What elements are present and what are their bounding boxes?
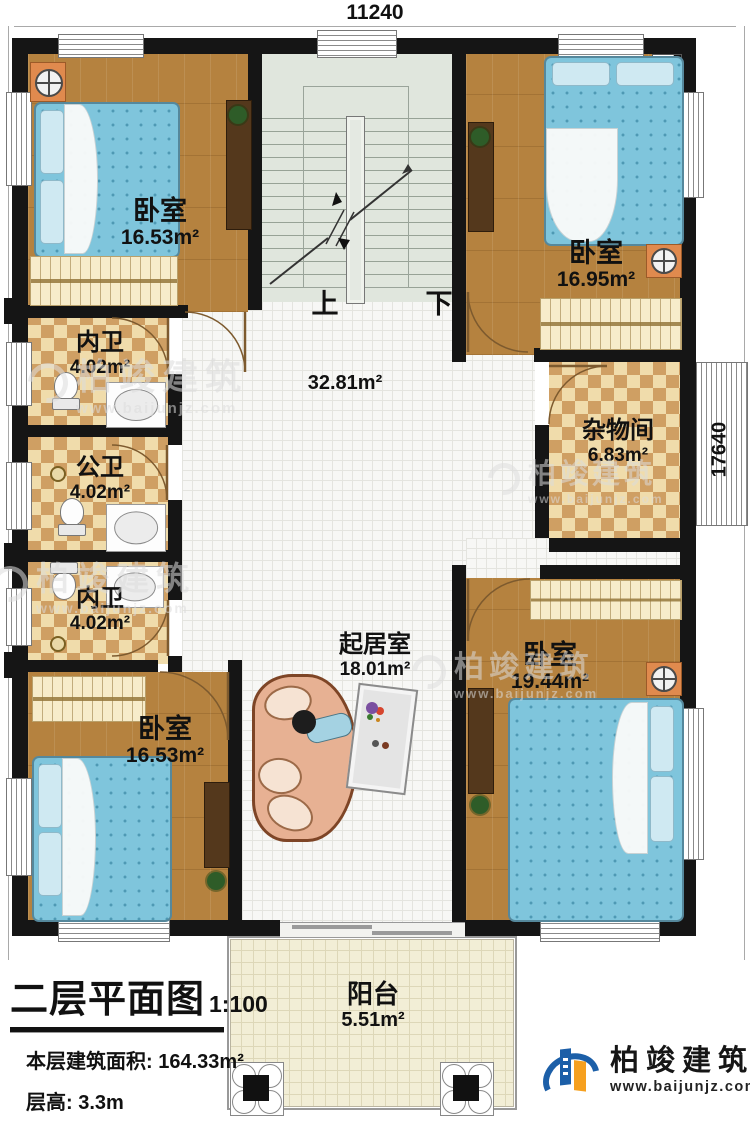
coffee-table: [346, 683, 418, 796]
brand-logo-icon: [540, 1040, 602, 1102]
blanket: [612, 702, 648, 854]
sink-icon: [106, 382, 166, 428]
wall: [228, 660, 242, 922]
wall-pier: [4, 652, 12, 678]
door-arc: [112, 600, 168, 656]
sliding-door-panel: [292, 925, 372, 929]
window: [317, 30, 397, 58]
wardrobe: [540, 298, 682, 350]
door-arc: [185, 312, 245, 372]
brand-name: 柏竣建筑: [610, 1047, 750, 1076]
stairs-up-label: 上: [304, 282, 346, 321]
pillow: [650, 706, 674, 772]
title-underline: [10, 1027, 224, 1033]
dimension-width: 11240: [280, 1, 470, 25]
sliding-door-panel: [372, 931, 452, 935]
window: [6, 462, 32, 530]
pillow: [552, 62, 610, 86]
pillow: [616, 62, 674, 86]
lamp-icon: [651, 248, 677, 274]
wardrobe: [32, 676, 146, 722]
wall: [535, 425, 549, 538]
plan-scale: 1:100: [209, 991, 268, 1018]
desk: [204, 782, 230, 868]
wall-pier: [4, 298, 12, 324]
wardrobe: [30, 256, 178, 306]
pendant-light-icon: [50, 466, 66, 482]
floor-area-line: 本层建筑面积: 164.33m²: [26, 1045, 290, 1074]
frame-line-top: [14, 26, 736, 27]
flower-vase-icon: [366, 702, 378, 714]
door-arc: [468, 292, 528, 352]
wall: [534, 348, 696, 362]
door-arc: [549, 366, 607, 424]
person-head: [292, 710, 316, 734]
wall: [168, 500, 182, 600]
pillow: [40, 180, 64, 244]
wall: [168, 374, 182, 445]
toilet-icon: [58, 498, 84, 534]
wall: [549, 538, 696, 552]
window: [6, 92, 32, 186]
desk: [468, 688, 494, 794]
brand-url: www.baijunjz.com: [610, 1079, 750, 1095]
toilet-icon: [52, 564, 78, 600]
window: [558, 34, 644, 58]
floor-height-line: 层高: 3.3m: [26, 1086, 290, 1115]
plant-icon: [471, 128, 489, 146]
wardrobe: [530, 580, 682, 620]
pendant-light-icon: [50, 636, 66, 652]
wall: [12, 660, 158, 672]
door-arc: [112, 445, 167, 500]
title-block: 二层平面图 1:100 本层建筑面积: 164.33m² 层高: 3.3m: [10, 968, 290, 1115]
stairs-down-label: 下: [418, 282, 460, 321]
blanket: [546, 128, 618, 242]
wall: [540, 565, 696, 579]
stair-direction-arrow: [266, 150, 436, 290]
window: [58, 34, 144, 58]
wall: [452, 565, 466, 922]
floor-plan: 11240: [0, 0, 750, 1127]
table-item-icon: [372, 740, 379, 747]
wall-pier: [4, 543, 12, 569]
window: [6, 778, 32, 876]
plant-icon: [207, 872, 225, 890]
toilet-icon: [52, 372, 78, 408]
brand-logo: 柏竣建筑 www.baijunjz.com: [540, 1040, 750, 1102]
pillow: [650, 776, 674, 842]
pillow: [40, 110, 64, 174]
plant-icon: [229, 106, 247, 124]
window: [6, 342, 32, 406]
pillow: [38, 832, 62, 896]
lamp-icon: [651, 666, 677, 692]
window: [6, 588, 32, 646]
plan-title: 二层平面图: [10, 968, 205, 1023]
sink-icon: [106, 504, 166, 552]
sink-icon: [106, 566, 164, 608]
door-arc: [468, 579, 530, 641]
lamp-icon: [35, 69, 63, 97]
plant-icon: [471, 796, 489, 814]
pillow: [38, 764, 62, 828]
dimension-height: 17640: [709, 370, 732, 530]
door-arc: [160, 672, 228, 740]
wall: [168, 305, 182, 318]
wall: [12, 305, 188, 318]
door-arc: [112, 318, 168, 374]
wall: [168, 656, 182, 672]
blanket: [64, 104, 98, 254]
balcony-pillar: [440, 1062, 494, 1116]
